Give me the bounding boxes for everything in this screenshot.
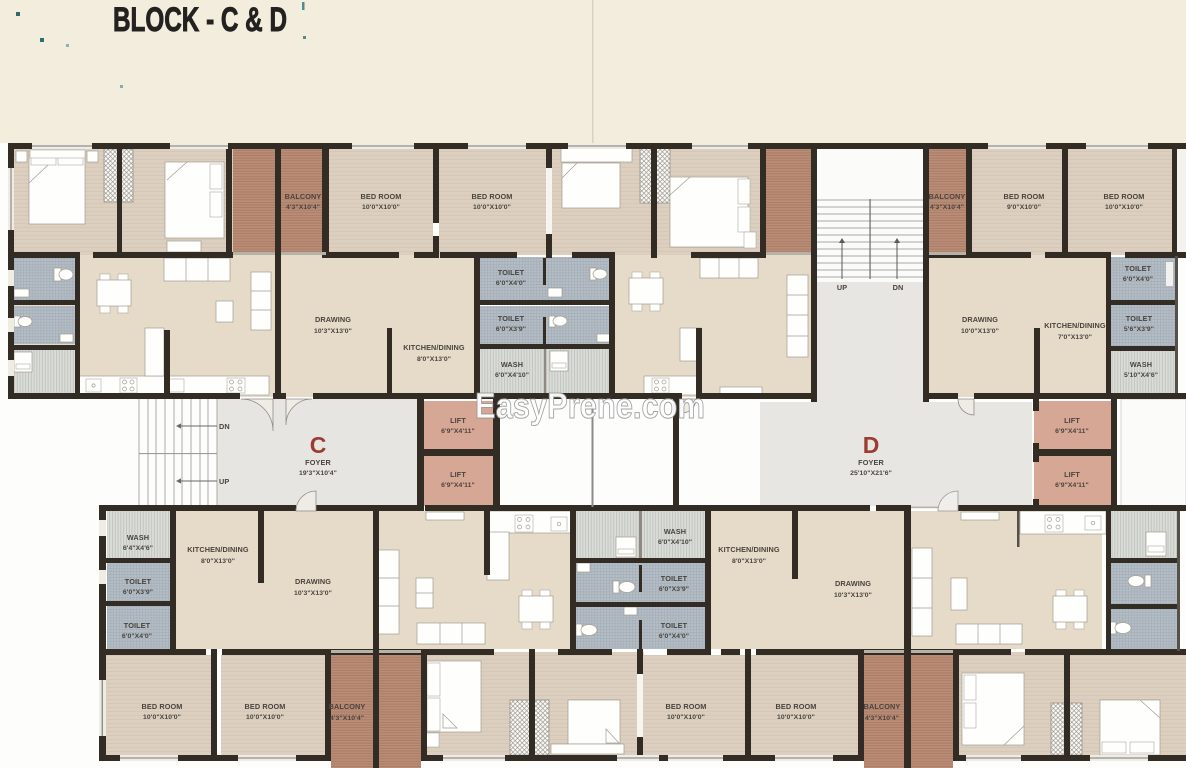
svg-text:LIFT: LIFT — [1064, 470, 1080, 479]
svg-text:KITCHEN/DINING: KITCHEN/DINING — [1044, 321, 1106, 330]
svg-text:6'0"X4'0": 6'0"X4'0" — [659, 633, 689, 640]
svg-text:D: D — [863, 432, 880, 458]
svg-text:KITCHEN/DINING: KITCHEN/DINING — [718, 545, 780, 554]
svg-text:10'0"X10'0": 10'0"X10'0" — [473, 204, 511, 211]
svg-text:10'0"X10'0": 10'0"X10'0" — [362, 204, 400, 211]
svg-text:TOILET: TOILET — [1126, 314, 1153, 323]
svg-text:19'3"X10'4": 19'3"X10'4" — [299, 470, 337, 477]
svg-text:BED ROOM: BED ROOM — [1104, 192, 1145, 201]
svg-text:WASH: WASH — [664, 527, 686, 536]
svg-text:TOILET: TOILET — [124, 621, 151, 630]
svg-text:TOILET: TOILET — [1125, 264, 1152, 273]
svg-text:25'10"X21'6": 25'10"X21'6" — [850, 470, 892, 477]
svg-text:BED ROOM: BED ROOM — [1004, 192, 1045, 201]
svg-text:6'0"X3'9": 6'0"X3'9" — [123, 589, 153, 596]
svg-text:DN: DN — [893, 283, 904, 292]
svg-text:8'0"X13'0": 8'0"X13'0" — [201, 558, 235, 565]
svg-text:10'0"X13'0": 10'0"X13'0" — [961, 328, 999, 335]
svg-text:10'0"X10'0": 10'0"X10'0" — [777, 714, 815, 721]
svg-text:TOILET: TOILET — [661, 574, 688, 583]
svg-text:UP: UP — [219, 477, 229, 486]
svg-text:5'10"X4'6": 5'10"X4'6" — [1124, 372, 1158, 379]
svg-text:BED ROOM: BED ROOM — [472, 192, 513, 201]
svg-text:LIFT: LIFT — [1064, 416, 1080, 425]
svg-text:4'3"X10'4": 4'3"X10'4" — [286, 204, 320, 211]
svg-text:10'0"X10'0": 10'0"X10'0" — [667, 714, 705, 721]
svg-text:4'3"X10'4": 4'3"X10'4" — [865, 715, 899, 722]
svg-text:6'0"X4'0": 6'0"X4'0" — [496, 280, 526, 287]
svg-text:5'6"X3'9": 5'6"X3'9" — [1124, 326, 1154, 333]
svg-text:10'0"X10'0": 10'0"X10'0" — [246, 714, 284, 721]
svg-text:TOILET: TOILET — [661, 621, 688, 630]
svg-text:6'9"X4'11": 6'9"X4'11" — [441, 428, 475, 435]
svg-text:DN: DN — [219, 422, 230, 431]
svg-text:BED ROOM: BED ROOM — [666, 702, 707, 711]
svg-text:6'0"X3'9": 6'0"X3'9" — [659, 586, 689, 593]
svg-text:DRAWING: DRAWING — [315, 315, 351, 324]
svg-text:6'9"X4'11": 6'9"X4'11" — [1055, 428, 1089, 435]
svg-text:FOYER: FOYER — [858, 458, 884, 467]
svg-text:8'0"X13'0": 8'0"X13'0" — [417, 356, 451, 363]
svg-text:6'0"X4'10": 6'0"X4'10" — [658, 539, 692, 546]
svg-text:TOILET: TOILET — [498, 268, 525, 277]
svg-text:10'3"X13'0": 10'3"X13'0" — [314, 328, 352, 335]
svg-text:WASH: WASH — [127, 533, 149, 542]
svg-text:FOYER: FOYER — [305, 458, 331, 467]
svg-text:DRAWING: DRAWING — [295, 577, 331, 586]
svg-text:6'0"X4'10": 6'0"X4'10" — [495, 372, 529, 379]
svg-text:BED ROOM: BED ROOM — [245, 702, 286, 711]
svg-text:DRAWING: DRAWING — [835, 579, 871, 588]
svg-text:4'3"X10'4": 4'3"X10'4" — [930, 204, 964, 211]
svg-text:BALCONY: BALCONY — [929, 192, 966, 201]
svg-text:6'9"X4'11": 6'9"X4'11" — [1055, 482, 1089, 489]
svg-text:6'0"X3'9": 6'0"X3'9" — [496, 326, 526, 333]
svg-text:TOILET: TOILET — [498, 314, 525, 323]
svg-text:BALCONY: BALCONY — [329, 702, 366, 711]
svg-text:6'9"X4'11": 6'9"X4'11" — [441, 482, 475, 489]
svg-text:BED ROOM: BED ROOM — [361, 192, 402, 201]
svg-text:WASH: WASH — [1130, 360, 1152, 369]
svg-text:10'0"X10'0": 10'0"X10'0" — [1105, 204, 1143, 211]
svg-text:6'0"X4'0": 6'0"X4'0" — [122, 633, 152, 640]
svg-text:C: C — [310, 432, 327, 458]
svg-text:KITCHEN/DINING: KITCHEN/DINING — [187, 545, 249, 554]
svg-text:LIFT: LIFT — [450, 416, 466, 425]
svg-text:7'0"X13'0": 7'0"X13'0" — [1058, 334, 1092, 341]
svg-text:BLOCK - C & D: BLOCK - C & D — [113, 1, 287, 39]
svg-text:10'3"X13'0": 10'3"X13'0" — [294, 590, 332, 597]
svg-text:EasyPrene.com: EasyPrene.com — [475, 385, 705, 426]
svg-text:4'3"X10'4": 4'3"X10'4" — [330, 715, 364, 722]
svg-text:10'3"X13'0": 10'3"X13'0" — [834, 592, 872, 599]
svg-text:9'0"X10'0": 9'0"X10'0" — [1007, 204, 1041, 211]
svg-text:BED ROOM: BED ROOM — [776, 702, 817, 711]
svg-text:WASH: WASH — [501, 360, 523, 369]
svg-text:6'0"X4'0": 6'0"X4'0" — [1123, 276, 1153, 283]
svg-text:6'4"X4'6": 6'4"X4'6" — [123, 545, 153, 552]
svg-text:KITCHEN/DINING: KITCHEN/DINING — [403, 343, 465, 352]
svg-text:LIFT: LIFT — [450, 470, 466, 479]
svg-text:DRAWING: DRAWING — [962, 315, 998, 324]
svg-text:UP: UP — [837, 283, 847, 292]
svg-text:BALCONY: BALCONY — [285, 192, 322, 201]
svg-text:TOILET: TOILET — [125, 577, 152, 586]
svg-text:8'0"X13'0": 8'0"X13'0" — [732, 558, 766, 565]
svg-text:BALCONY: BALCONY — [864, 702, 901, 711]
svg-text:10'0"X10'0": 10'0"X10'0" — [143, 714, 181, 721]
svg-text:BED ROOM: BED ROOM — [142, 702, 183, 711]
